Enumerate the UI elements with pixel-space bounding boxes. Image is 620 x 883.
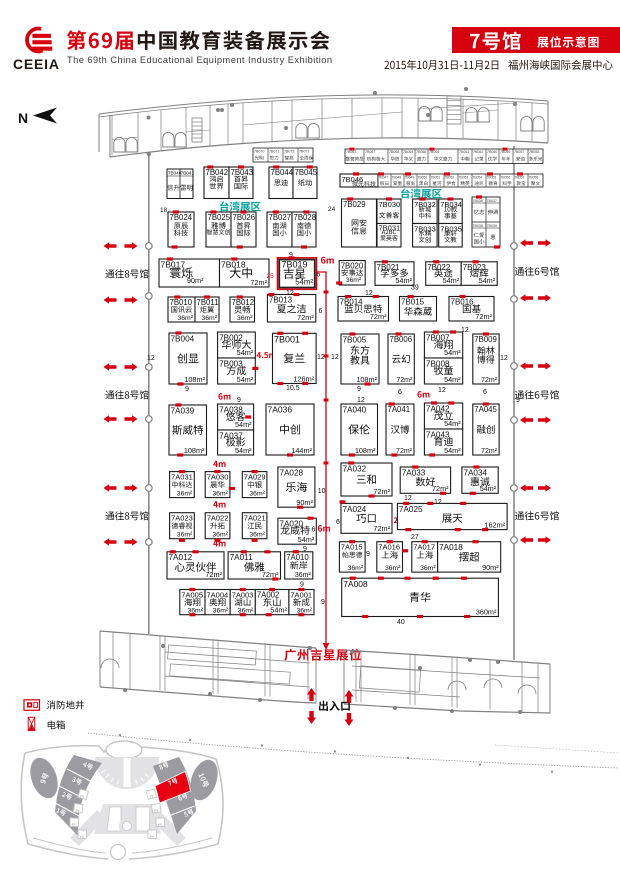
svg-text:72m²: 72m² (396, 377, 413, 384)
svg-text:36m²: 36m² (237, 315, 253, 322)
svg-text:54m²: 54m² (270, 606, 287, 615)
svg-text:36m²: 36m² (212, 490, 228, 497)
svg-text:7B013: 7B013 (269, 296, 293, 305)
svg-text:12: 12 (438, 387, 446, 394)
svg-text:54m²: 54m² (235, 446, 252, 455)
svg-text:7A024: 7A024 (343, 505, 367, 514)
svg-text:7A010: 7A010 (286, 553, 309, 562)
svg-text:9: 9 (366, 551, 370, 558)
svg-text:7A017: 7A017 (413, 542, 435, 551)
svg-text:7B052: 7B052 (445, 176, 455, 180)
svg-text:7B056: 7B056 (501, 176, 511, 180)
svg-text:7B054: 7B054 (473, 176, 483, 180)
svg-text:7B047: 7B047 (379, 176, 389, 180)
svg-text:54m²: 54m² (444, 446, 461, 455)
svg-text:7B003: 7B003 (219, 359, 243, 368)
svg-text:7A022: 7A022 (207, 513, 229, 522)
svg-text:7B053: 7B053 (459, 176, 469, 180)
svg-text:36m²: 36m² (385, 565, 401, 572)
svg-text:7A005: 7A005 (181, 590, 203, 599)
svg-text:18: 18 (160, 207, 168, 214)
svg-text:9: 9 (516, 397, 520, 404)
svg-text:9: 9 (237, 397, 241, 404)
svg-text:36m²: 36m² (213, 608, 229, 615)
svg-text:7B029: 7B029 (343, 200, 366, 209)
svg-text:7B027: 7B027 (269, 213, 292, 222)
svg-text:72m²: 72m² (481, 448, 498, 455)
svg-text:7B040: 7B040 (168, 171, 182, 176)
svg-text:7A016: 7A016 (378, 542, 400, 551)
svg-text:54m²: 54m² (443, 276, 460, 285)
svg-text:7B032: 7B032 (414, 200, 436, 209)
svg-text:7B042: 7B042 (206, 168, 229, 177)
svg-text:144m²: 144m² (291, 446, 312, 455)
svg-text:54m²: 54m² (395, 276, 412, 285)
svg-text:7B019: 7B019 (282, 259, 308, 269)
svg-text:7B028: 7B028 (294, 213, 317, 222)
svg-text:7B036: 7B036 (473, 199, 483, 203)
svg-text:7B057: 7B057 (514, 150, 524, 154)
svg-text:7A001: 7A001 (290, 590, 312, 599)
svg-text:54m²: 54m² (237, 375, 254, 384)
svg-text:7B025: 7B025 (208, 213, 231, 222)
svg-text:7A028: 7A028 (279, 468, 303, 477)
svg-text:7B045: 7B045 (295, 168, 318, 177)
svg-text:7B015: 7B015 (401, 298, 425, 307)
svg-text:7B039: 7B039 (487, 224, 497, 228)
svg-text:7A036: 7A036 (268, 405, 293, 415)
svg-text:7B061: 7B061 (459, 150, 469, 154)
svg-text:7A030: 7A030 (207, 472, 229, 481)
svg-text:9: 9 (185, 386, 189, 393)
svg-text:7A033: 7A033 (402, 468, 426, 477)
svg-text:36m²: 36m² (249, 532, 265, 539)
svg-text:7B067: 7B067 (365, 150, 375, 154)
svg-text:7B035: 7B035 (440, 224, 462, 233)
svg-text:54m²: 54m² (235, 420, 252, 429)
svg-text:7B062: 7B062 (473, 150, 483, 154)
svg-text:12: 12 (147, 355, 155, 362)
svg-text:54m²: 54m² (237, 348, 254, 357)
svg-text:36m²: 36m² (295, 572, 312, 579)
svg-text:7A039: 7A039 (171, 406, 195, 415)
svg-text:9: 9 (300, 582, 304, 589)
svg-text:25: 25 (267, 273, 275, 280)
svg-text:7B037: 7B037 (487, 199, 497, 203)
svg-text:7B034: 7B034 (440, 200, 462, 209)
svg-text:54m²: 54m² (444, 348, 461, 357)
svg-text:7B050: 7B050 (418, 176, 428, 180)
svg-text:7A029: 7A029 (244, 472, 266, 481)
svg-text:7B072: 7B072 (284, 150, 294, 154)
svg-text:7A032: 7A032 (343, 464, 367, 473)
svg-text:108m²: 108m² (184, 446, 205, 455)
svg-text:72m²: 72m² (297, 313, 314, 322)
svg-text:7A034: 7A034 (463, 468, 487, 477)
svg-text:7B049: 7B049 (405, 176, 415, 180)
svg-text:7B001: 7B001 (274, 334, 300, 344)
svg-text:7B023: 7B023 (463, 263, 487, 272)
svg-text:7A015: 7A015 (341, 542, 363, 551)
svg-text:N: N (18, 110, 28, 126)
svg-text:7B005: 7B005 (343, 335, 367, 344)
svg-text:7A008: 7A008 (343, 579, 368, 589)
svg-text:6: 6 (398, 389, 402, 396)
svg-text:36m²: 36m² (212, 532, 228, 539)
svg-text:The 69th China Educational Equ: The 69th China Educational Equipment Ind… (67, 55, 333, 65)
svg-text:6: 6 (483, 389, 487, 396)
svg-text:7B058: 7B058 (529, 176, 539, 180)
svg-text:36m²: 36m² (177, 490, 193, 497)
svg-text:12: 12 (500, 355, 508, 362)
svg-text:72m²: 72m² (475, 312, 492, 321)
svg-text:72m²: 72m² (205, 570, 222, 579)
svg-text:9: 9 (321, 599, 325, 606)
svg-text:72m²: 72m² (373, 487, 390, 496)
svg-text:7A011: 7A011 (230, 553, 254, 562)
svg-text:7B073: 7B073 (299, 150, 309, 154)
svg-text:6: 6 (319, 308, 323, 315)
svg-text:7B038: 7B038 (473, 224, 483, 228)
svg-text:90m²: 90m² (482, 563, 499, 572)
svg-text:7B070: 7B070 (254, 150, 264, 154)
svg-text:7A003: 7A003 (232, 590, 254, 599)
svg-text:36m²: 36m² (202, 315, 218, 322)
svg-text:7A031: 7A031 (171, 472, 193, 481)
svg-text:6: 6 (336, 519, 340, 526)
svg-text:7B063: 7B063 (346, 150, 356, 154)
svg-text:12: 12 (331, 354, 339, 361)
svg-text:7B071: 7B071 (269, 150, 279, 154)
svg-text:7B068: 7B068 (389, 150, 399, 154)
svg-text:7A012: 7A012 (169, 553, 193, 562)
svg-text:54m²: 54m² (444, 375, 461, 384)
svg-text:7B064: 7B064 (403, 150, 413, 154)
svg-text:108m²: 108m² (355, 446, 376, 455)
svg-text:7B004: 7B004 (171, 334, 195, 343)
svg-text:7B012: 7B012 (232, 298, 255, 307)
svg-text:36m²: 36m² (177, 532, 193, 539)
svg-text:72m²: 72m² (481, 377, 498, 384)
svg-text:7A045: 7A045 (474, 405, 497, 414)
svg-text:36m²: 36m² (249, 490, 265, 497)
svg-text:7B059: 7B059 (500, 150, 510, 154)
svg-text:24: 24 (328, 206, 336, 213)
svg-text:7A004: 7A004 (207, 590, 229, 599)
svg-text:72m²: 72m² (250, 278, 267, 287)
svg-text:36m²: 36m² (420, 565, 436, 572)
svg-text:9: 9 (357, 386, 361, 393)
svg-text:7B009: 7B009 (474, 335, 497, 344)
svg-text:72m²: 72m² (396, 448, 413, 455)
svg-text:7B011: 7B011 (197, 298, 219, 307)
svg-text:36m²: 36m² (346, 277, 362, 284)
svg-text:10: 10 (318, 488, 326, 495)
svg-text:7B051: 7B051 (431, 176, 441, 180)
svg-text:7B020: 7B020 (341, 262, 364, 271)
svg-text:7B002: 7B002 (219, 333, 243, 342)
svg-text:7A023: 7A023 (171, 513, 193, 522)
svg-text:7B044: 7B044 (271, 168, 294, 177)
svg-text:7B058: 7B058 (529, 150, 539, 154)
svg-text:7A040: 7A040 (343, 405, 367, 414)
svg-text:12: 12 (357, 397, 365, 404)
svg-text:54m²: 54m² (444, 419, 461, 428)
svg-text:7B043: 7B043 (231, 168, 254, 177)
svg-text:7A025: 7A025 (399, 505, 423, 514)
svg-text:7A021: 7A021 (244, 513, 266, 522)
svg-text:108m²: 108m² (184, 375, 205, 384)
svg-text:7B055: 7B055 (487, 176, 497, 180)
svg-text:7A041: 7A041 (388, 405, 411, 414)
svg-text:6: 6 (312, 527, 316, 534)
svg-text:72m²: 72m² (370, 312, 387, 321)
svg-text:54m²: 54m² (298, 535, 315, 544)
svg-text:39: 39 (411, 285, 419, 292)
svg-text:90m²: 90m² (187, 276, 204, 285)
svg-text:54m²: 54m² (295, 278, 313, 287)
svg-text:360m²: 360m² (476, 607, 497, 616)
svg-text:7B046: 7B046 (342, 175, 364, 184)
svg-text:7B057: 7B057 (515, 176, 525, 180)
svg-text:36m²: 36m² (348, 565, 364, 572)
svg-text:27: 27 (411, 534, 419, 541)
svg-text:7B024: 7B024 (170, 213, 193, 222)
svg-text:7B066: 7B066 (416, 150, 426, 154)
svg-text:7B060: 7B060 (487, 150, 497, 154)
svg-text:7A018: 7A018 (439, 543, 463, 552)
svg-text:7B033: 7B033 (414, 224, 436, 233)
svg-text:7A002: 7A002 (257, 591, 280, 600)
svg-text:7B006: 7B006 (390, 335, 413, 344)
svg-text:7B026: 7B026 (233, 213, 256, 222)
svg-text:7B048: 7B048 (392, 176, 402, 180)
svg-text:7B041: 7B041 (181, 171, 195, 176)
svg-text:12: 12 (404, 495, 412, 502)
svg-text:7B010: 7B010 (170, 298, 193, 307)
svg-text:10.5: 10.5 (286, 385, 300, 392)
svg-text:54m²: 54m² (479, 276, 496, 285)
svg-text:54m²: 54m² (480, 484, 497, 493)
svg-text:7B030: 7B030 (379, 200, 401, 209)
svg-text:7B065: 7B065 (429, 150, 439, 154)
svg-text:CEEIA: CEEIA (13, 56, 60, 72)
svg-text:36m²: 36m² (178, 315, 194, 322)
svg-text:7B018: 7B018 (221, 260, 246, 270)
svg-text:40: 40 (397, 619, 405, 626)
svg-text:72m²: 72m² (373, 524, 390, 533)
